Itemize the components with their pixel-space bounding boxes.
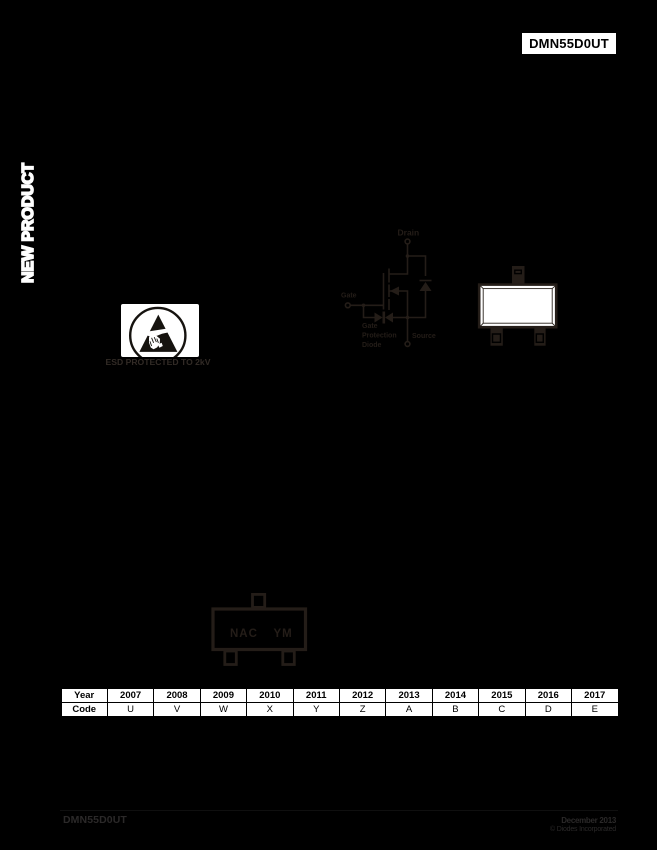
svg-text:NAC: NAC (230, 628, 258, 640)
svg-text:Source: Source (412, 333, 436, 340)
svg-text:YM: YM (274, 628, 293, 640)
svg-text:Gate: Gate (362, 323, 378, 330)
svg-text:Protection: Protection (362, 333, 397, 340)
svg-text:Diode: Diode (362, 342, 382, 349)
svg-text:Gate: Gate (341, 293, 357, 300)
svg-text:NEW PRODUCT: NEW PRODUCT (20, 163, 37, 283)
svg-text:Drain: Drain (398, 228, 420, 238)
